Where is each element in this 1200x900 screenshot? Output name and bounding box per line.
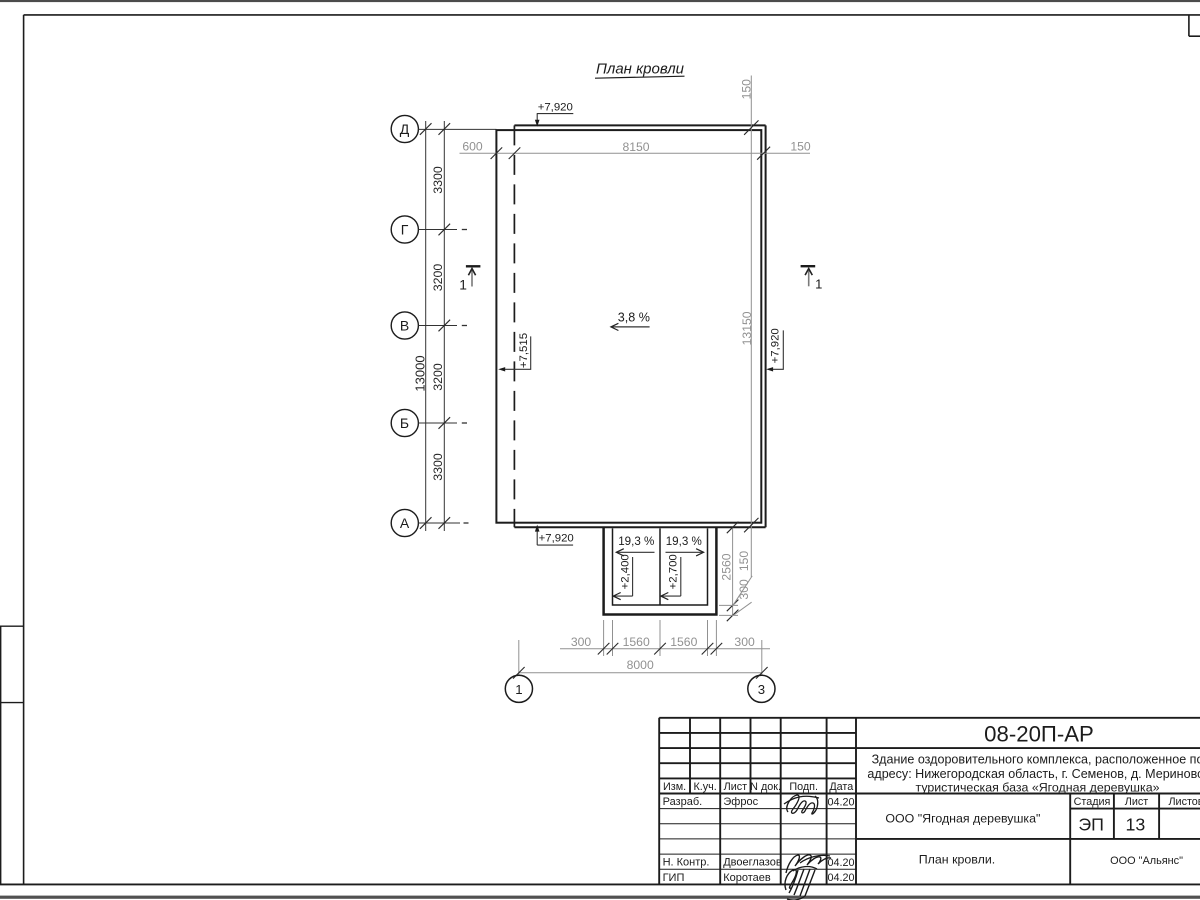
svg-text:1: 1 bbox=[515, 682, 522, 697]
svg-text:Разраб.: Разраб. bbox=[663, 796, 703, 808]
svg-text:В: В bbox=[400, 318, 409, 334]
svg-text:08-20П-АР: 08-20П-АР bbox=[984, 721, 1094, 746]
svg-text:+7,920: +7,920 bbox=[539, 532, 574, 544]
svg-text:Г: Г bbox=[401, 222, 409, 238]
svg-text:Эфрос: Эфрос bbox=[723, 796, 758, 808]
svg-text:150: 150 bbox=[739, 79, 753, 100]
svg-text:Подп.: Подп. bbox=[789, 781, 818, 793]
svg-text:3,8 %: 3,8 % bbox=[618, 311, 650, 325]
svg-text:300: 300 bbox=[734, 635, 755, 649]
svg-text:Двоеглазов: Двоеглазов bbox=[723, 857, 782, 869]
svg-text:К.уч.: К.уч. bbox=[693, 781, 716, 793]
svg-text:3300: 3300 bbox=[431, 453, 445, 481]
svg-text:04.20: 04.20 bbox=[827, 872, 854, 884]
svg-text:Н. Контр.: Н. Контр. bbox=[663, 857, 710, 869]
svg-text:Б: Б bbox=[400, 415, 409, 431]
svg-text:+2,700: +2,700 bbox=[668, 554, 680, 589]
svg-text:1: 1 bbox=[815, 277, 822, 292]
svg-text:19,3 %: 19,3 % bbox=[618, 535, 654, 548]
svg-text:Здание оздоровительного компле: Здание оздоровительного комплекса, распо… bbox=[872, 753, 1200, 767]
svg-text:+7,515: +7,515 bbox=[518, 333, 530, 368]
svg-text:13000: 13000 bbox=[413, 355, 428, 391]
svg-text:Листов: Листов bbox=[1168, 796, 1200, 808]
svg-text:3200: 3200 bbox=[431, 363, 445, 391]
svg-text:1560: 1560 bbox=[670, 635, 697, 649]
svg-text:План кровли: План кровли bbox=[596, 60, 685, 77]
svg-text:600: 600 bbox=[462, 140, 483, 154]
svg-text:3300: 3300 bbox=[431, 166, 445, 194]
svg-text:3200: 3200 bbox=[431, 264, 445, 292]
svg-text:ООО "Ягодная деревушка": ООО "Ягодная деревушка" bbox=[885, 812, 1040, 826]
svg-text:13: 13 bbox=[1126, 815, 1146, 835]
svg-text:+7,920: +7,920 bbox=[770, 328, 782, 363]
svg-text:Коротаев: Коротаев bbox=[723, 872, 771, 884]
svg-text:8000: 8000 bbox=[627, 658, 654, 672]
svg-text:1: 1 bbox=[459, 277, 467, 292]
svg-text:3: 3 bbox=[758, 682, 765, 697]
svg-text:ЭП: ЭП bbox=[1078, 815, 1104, 835]
svg-text:Д: Д bbox=[400, 121, 410, 137]
svg-text:8150: 8150 bbox=[622, 140, 649, 154]
svg-text:План кровли.: План кровли. bbox=[919, 853, 995, 867]
svg-text:Лист: Лист bbox=[724, 781, 748, 793]
svg-text:04.20: 04.20 bbox=[827, 796, 854, 808]
svg-text:04.20: 04.20 bbox=[827, 857, 854, 869]
svg-text:ГИП: ГИП bbox=[663, 872, 685, 884]
svg-text:300: 300 bbox=[737, 579, 751, 600]
svg-text:+2,400: +2,400 bbox=[619, 554, 631, 589]
svg-text:1560: 1560 bbox=[623, 635, 650, 649]
svg-text:А: А bbox=[400, 515, 410, 531]
svg-text:2560: 2560 bbox=[719, 553, 733, 580]
svg-text:Изм.: Изм. bbox=[663, 781, 686, 793]
svg-text:N док.: N док. bbox=[750, 781, 781, 793]
svg-text:150: 150 bbox=[790, 140, 811, 154]
svg-text:адресу: Нижегородская область,: адресу: Нижегородская область, г. Семено… bbox=[867, 767, 1200, 781]
svg-text:13150: 13150 bbox=[740, 311, 754, 345]
svg-text:+7,920: +7,920 bbox=[538, 102, 573, 114]
svg-text:150: 150 bbox=[737, 551, 751, 572]
svg-text:Дата: Дата bbox=[829, 781, 853, 793]
svg-text:19,3 %: 19,3 % bbox=[666, 535, 702, 548]
svg-text:ООО "Альянс": ООО "Альянс" bbox=[1110, 855, 1183, 867]
svg-text:Лист: Лист bbox=[1125, 796, 1149, 808]
svg-text:300: 300 bbox=[571, 635, 592, 649]
svg-text:Стадия: Стадия bbox=[1074, 796, 1111, 808]
svg-text:туристическая база «Ягодная де: туристическая база «Ягодная деревушка» bbox=[916, 780, 1160, 794]
